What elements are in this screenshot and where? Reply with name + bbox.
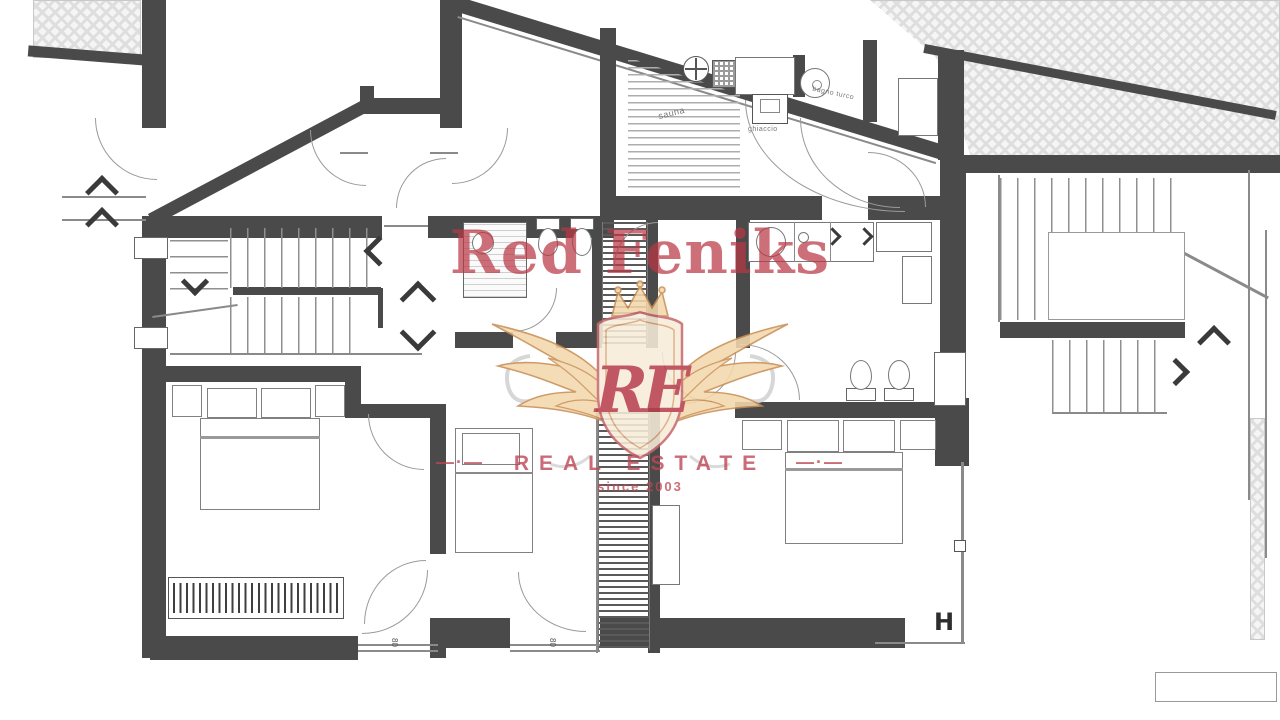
watermark-since: since 2003 [0,479,1280,494]
door-arc [868,152,926,207]
steam-bath-label: bagno turco [812,86,855,102]
fixture [1155,672,1277,702]
wall-segment [440,0,462,128]
wall-segment [1000,322,1185,338]
window [134,327,168,349]
floor-plan-canvas: sauna ghiaccio bagno turco [0,0,1280,720]
line [875,642,965,644]
door-arc [362,570,428,634]
dimension-label: 80 [548,638,557,647]
dimension-label: 80 [390,638,399,647]
wall-segment [438,618,510,648]
plan-detail: —·— [436,452,484,472]
line [378,288,383,328]
plan-detail: REAL ESTATE [514,452,766,475]
window [934,352,966,406]
watermark-tagline: —·— REAL ESTATE —·— [0,452,1280,476]
plan-detail: —·— [796,452,844,472]
wall-segment [600,28,616,218]
wall-segment [165,366,360,382]
line [170,353,422,355]
stair-treads [230,297,366,355]
door-arc [396,158,446,208]
pillow [172,385,202,417]
beam-mark: H [934,608,954,636]
direction-arrow-icon [1197,325,1231,359]
line [510,650,600,652]
wall-segment [360,86,374,114]
spa-bench [735,57,795,95]
pillow [207,388,257,418]
direction-arrow-icon [1162,358,1190,386]
line [430,152,458,154]
door-arc [518,572,586,632]
direction-arrow-icon [85,175,119,209]
pillow [843,420,895,452]
door-arc [95,118,157,180]
wall-segment [960,155,1280,173]
line [685,68,707,70]
wall-segment [612,196,822,220]
cabinet [652,505,680,585]
hanging-clothes [173,583,253,613]
pillow [900,420,936,450]
wall-segment [142,0,166,128]
wall-segment [150,636,358,660]
wall-segment [233,287,381,295]
pillow [315,385,345,417]
line [1052,412,1167,414]
door-arc [310,130,366,186]
watermark-monogram: RE [593,353,692,428]
hanging-clothes [258,583,338,613]
fixture [954,540,966,552]
line [200,436,320,439]
pillow [261,388,311,418]
bidet-bowl [888,360,910,390]
direction-arrow-icon [400,315,437,352]
spa-bench [898,78,938,136]
wall-segment [938,50,964,160]
line [340,152,368,154]
line [358,650,438,652]
watermark-title: Red Feniks [0,218,1280,288]
toilet-bowl [850,360,872,390]
stair-treads [1052,340,1165,412]
door-arc [452,128,508,184]
